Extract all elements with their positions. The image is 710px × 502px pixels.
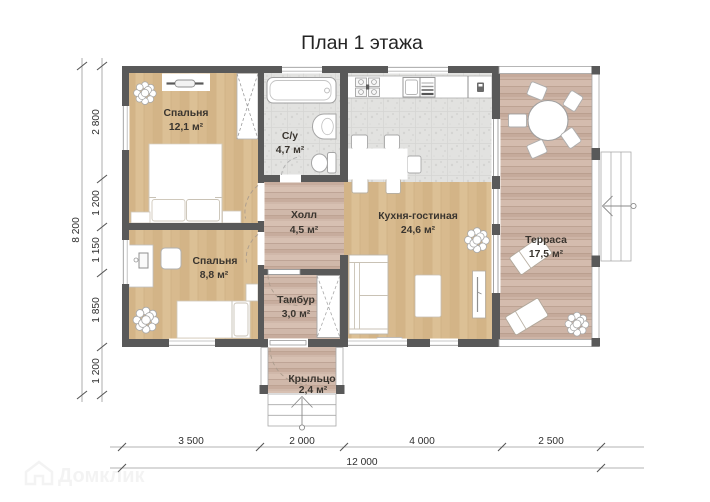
svg-text:4,7 м²: 4,7 м²: [276, 145, 305, 156]
svg-text:2,4 м²: 2,4 м²: [299, 385, 328, 396]
svg-text:12 000: 12 000: [346, 457, 377, 468]
svg-text:4 000: 4 000: [409, 436, 435, 447]
svg-text:Терраса: Терраса: [525, 235, 567, 246]
svg-text:Холл: Холл: [291, 210, 317, 221]
svg-text:1 150: 1 150: [91, 237, 102, 263]
svg-text:8 200: 8 200: [71, 217, 82, 243]
svg-text:Домклик: Домклик: [58, 465, 145, 487]
svg-text:Кухня-гостиная: Кухня-гостиная: [378, 211, 458, 222]
svg-text:3,0 м²: 3,0 м²: [282, 309, 311, 320]
svg-text:4,5 м²: 4,5 м²: [290, 225, 319, 236]
svg-text:1 200: 1 200: [91, 190, 102, 216]
svg-text:8,8 м²: 8,8 м²: [200, 270, 229, 281]
svg-text:1 850: 1 850: [91, 297, 102, 323]
svg-text:Тамбур: Тамбур: [277, 294, 315, 306]
svg-text:2 000: 2 000: [289, 436, 315, 447]
svg-text:1 200: 1 200: [91, 358, 102, 384]
svg-text:2 500: 2 500: [538, 436, 564, 447]
svg-text:2 800: 2 800: [91, 109, 102, 135]
svg-text:Крыльцо: Крыльцо: [288, 374, 335, 385]
svg-text:С/у: С/у: [282, 131, 298, 142]
svg-text:Спальня: Спальня: [164, 108, 209, 119]
svg-text:Спальня: Спальня: [193, 256, 238, 267]
svg-text:24,6 м²: 24,6 м²: [401, 225, 436, 236]
svg-text:План 1 этажа: План 1 этажа: [301, 32, 423, 54]
svg-text:17,5 м²: 17,5 м²: [529, 249, 564, 260]
svg-text:12,1 м²: 12,1 м²: [169, 122, 204, 133]
svg-text:3 500: 3 500: [178, 436, 204, 447]
